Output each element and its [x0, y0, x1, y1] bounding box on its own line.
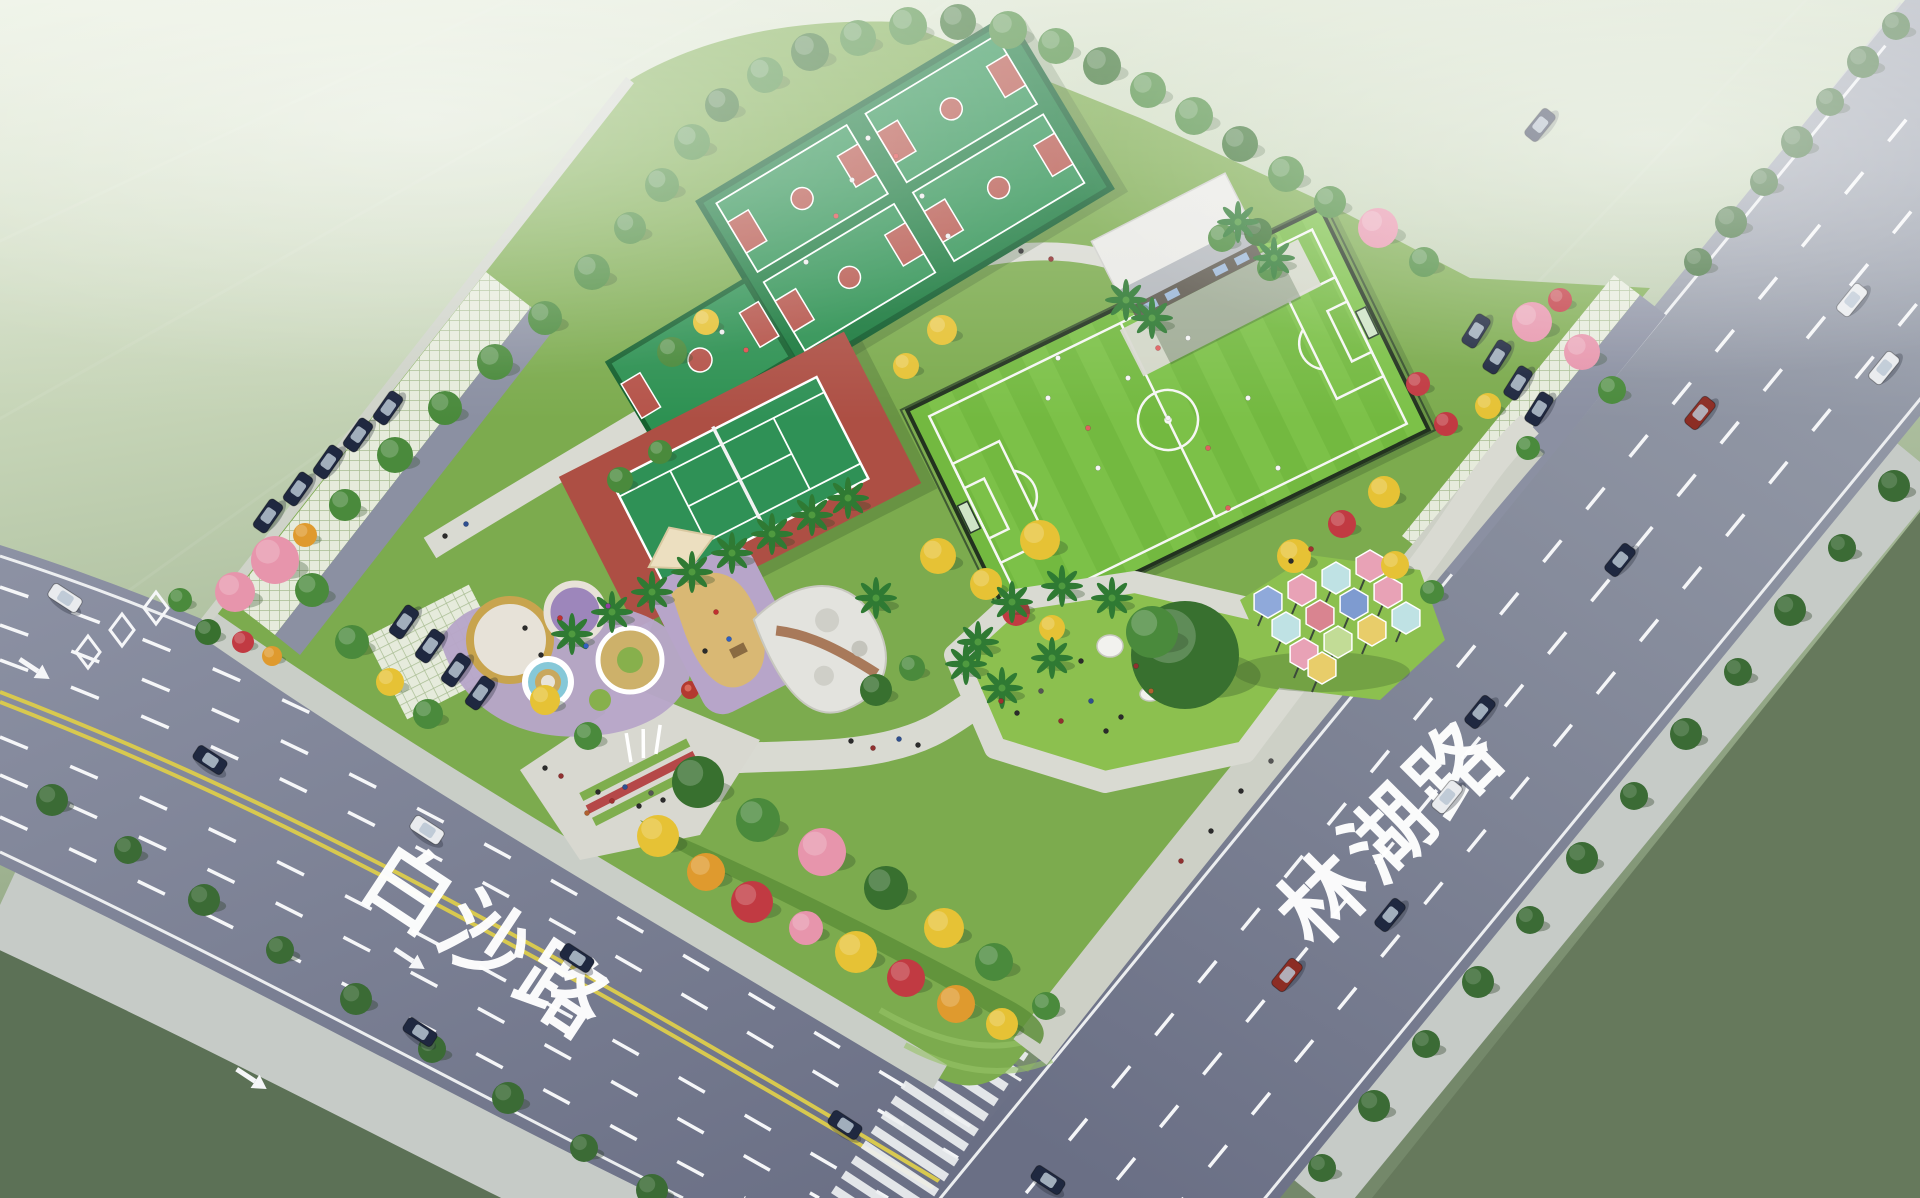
person [1178, 858, 1183, 863]
person [870, 745, 875, 750]
person [1205, 445, 1210, 450]
person [609, 798, 614, 803]
person [583, 643, 588, 648]
person [660, 797, 665, 802]
hex-canopy [1358, 614, 1386, 646]
person [833, 213, 838, 218]
person [558, 773, 563, 778]
person [1118, 714, 1123, 719]
person [1078, 658, 1083, 663]
person [1185, 335, 1190, 340]
hex-canopy [1340, 588, 1368, 620]
person [919, 193, 924, 198]
person [1085, 425, 1090, 430]
person [1308, 546, 1313, 551]
person [1088, 698, 1093, 703]
hex-canopy [1392, 602, 1420, 634]
person [622, 784, 627, 789]
person [557, 615, 562, 620]
person [1055, 355, 1060, 360]
person [538, 652, 543, 657]
person [1275, 465, 1280, 470]
person [998, 698, 1003, 703]
person [1103, 728, 1108, 733]
person [743, 347, 748, 352]
person [1245, 395, 1250, 400]
person [1048, 256, 1053, 261]
person [1125, 375, 1130, 380]
person [719, 329, 724, 334]
person [595, 789, 600, 794]
person [1208, 828, 1213, 833]
person [1165, 415, 1170, 420]
person [726, 636, 731, 641]
person [1238, 788, 1243, 793]
person [1133, 663, 1138, 668]
person [442, 533, 447, 538]
person [1148, 688, 1153, 693]
person [1058, 718, 1063, 723]
person [1268, 758, 1273, 763]
person [713, 609, 718, 614]
person [945, 233, 950, 238]
person [1038, 688, 1043, 693]
person [896, 736, 901, 741]
hex-canopy [1254, 586, 1282, 618]
person [522, 625, 527, 630]
person [1225, 505, 1230, 510]
hex-canopy [1374, 576, 1402, 608]
person [1014, 710, 1019, 715]
aerial-park-rendering: 白沙路 林湖路 [0, 0, 1920, 1198]
hex-canopy [1272, 612, 1300, 644]
hex-canopy [1356, 550, 1384, 582]
person [1288, 558, 1293, 563]
person [542, 765, 547, 770]
person [849, 177, 854, 182]
person [915, 742, 920, 747]
person [463, 521, 468, 526]
person [1155, 345, 1160, 350]
hex-canopy [1324, 626, 1352, 658]
person [605, 603, 610, 608]
person [636, 803, 641, 808]
person [1018, 248, 1023, 253]
person [1045, 395, 1050, 400]
person [865, 135, 870, 140]
person [803, 259, 808, 264]
person [702, 648, 707, 653]
hex-canopy [1308, 652, 1336, 684]
person [584, 810, 589, 815]
hex-canopy [1306, 600, 1334, 632]
hex-canopy [1288, 574, 1316, 606]
person [1095, 465, 1100, 470]
hex-canopy [1322, 562, 1350, 594]
person [648, 790, 653, 795]
person [848, 738, 853, 743]
person [893, 153, 898, 158]
